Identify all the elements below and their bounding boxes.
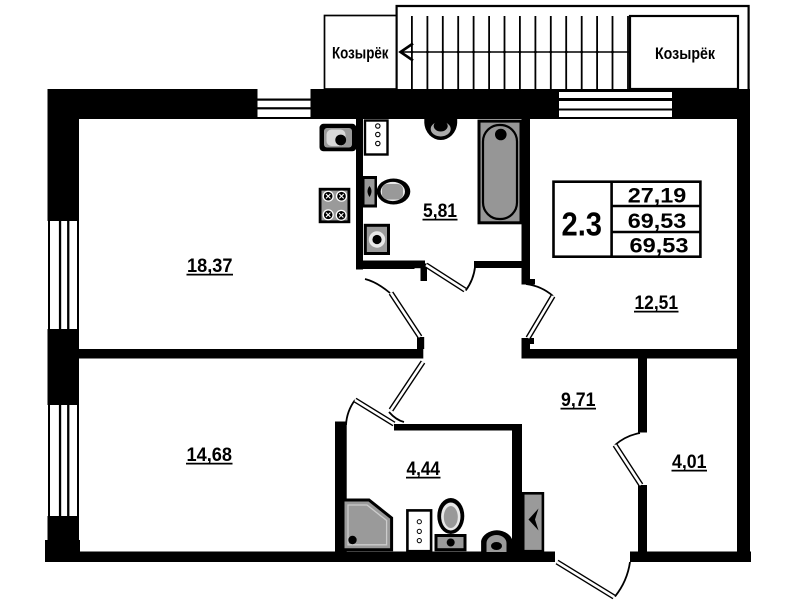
svg-text:27,19: 27,19 (628, 184, 687, 208)
svg-text:Козырёк: Козырёк (655, 44, 715, 63)
svg-text:69,53: 69,53 (628, 209, 687, 233)
svg-text:2.3: 2.3 (562, 205, 603, 242)
svg-text:69,53: 69,53 (630, 233, 689, 257)
svg-text:Козырёк: Козырёк (332, 44, 389, 63)
